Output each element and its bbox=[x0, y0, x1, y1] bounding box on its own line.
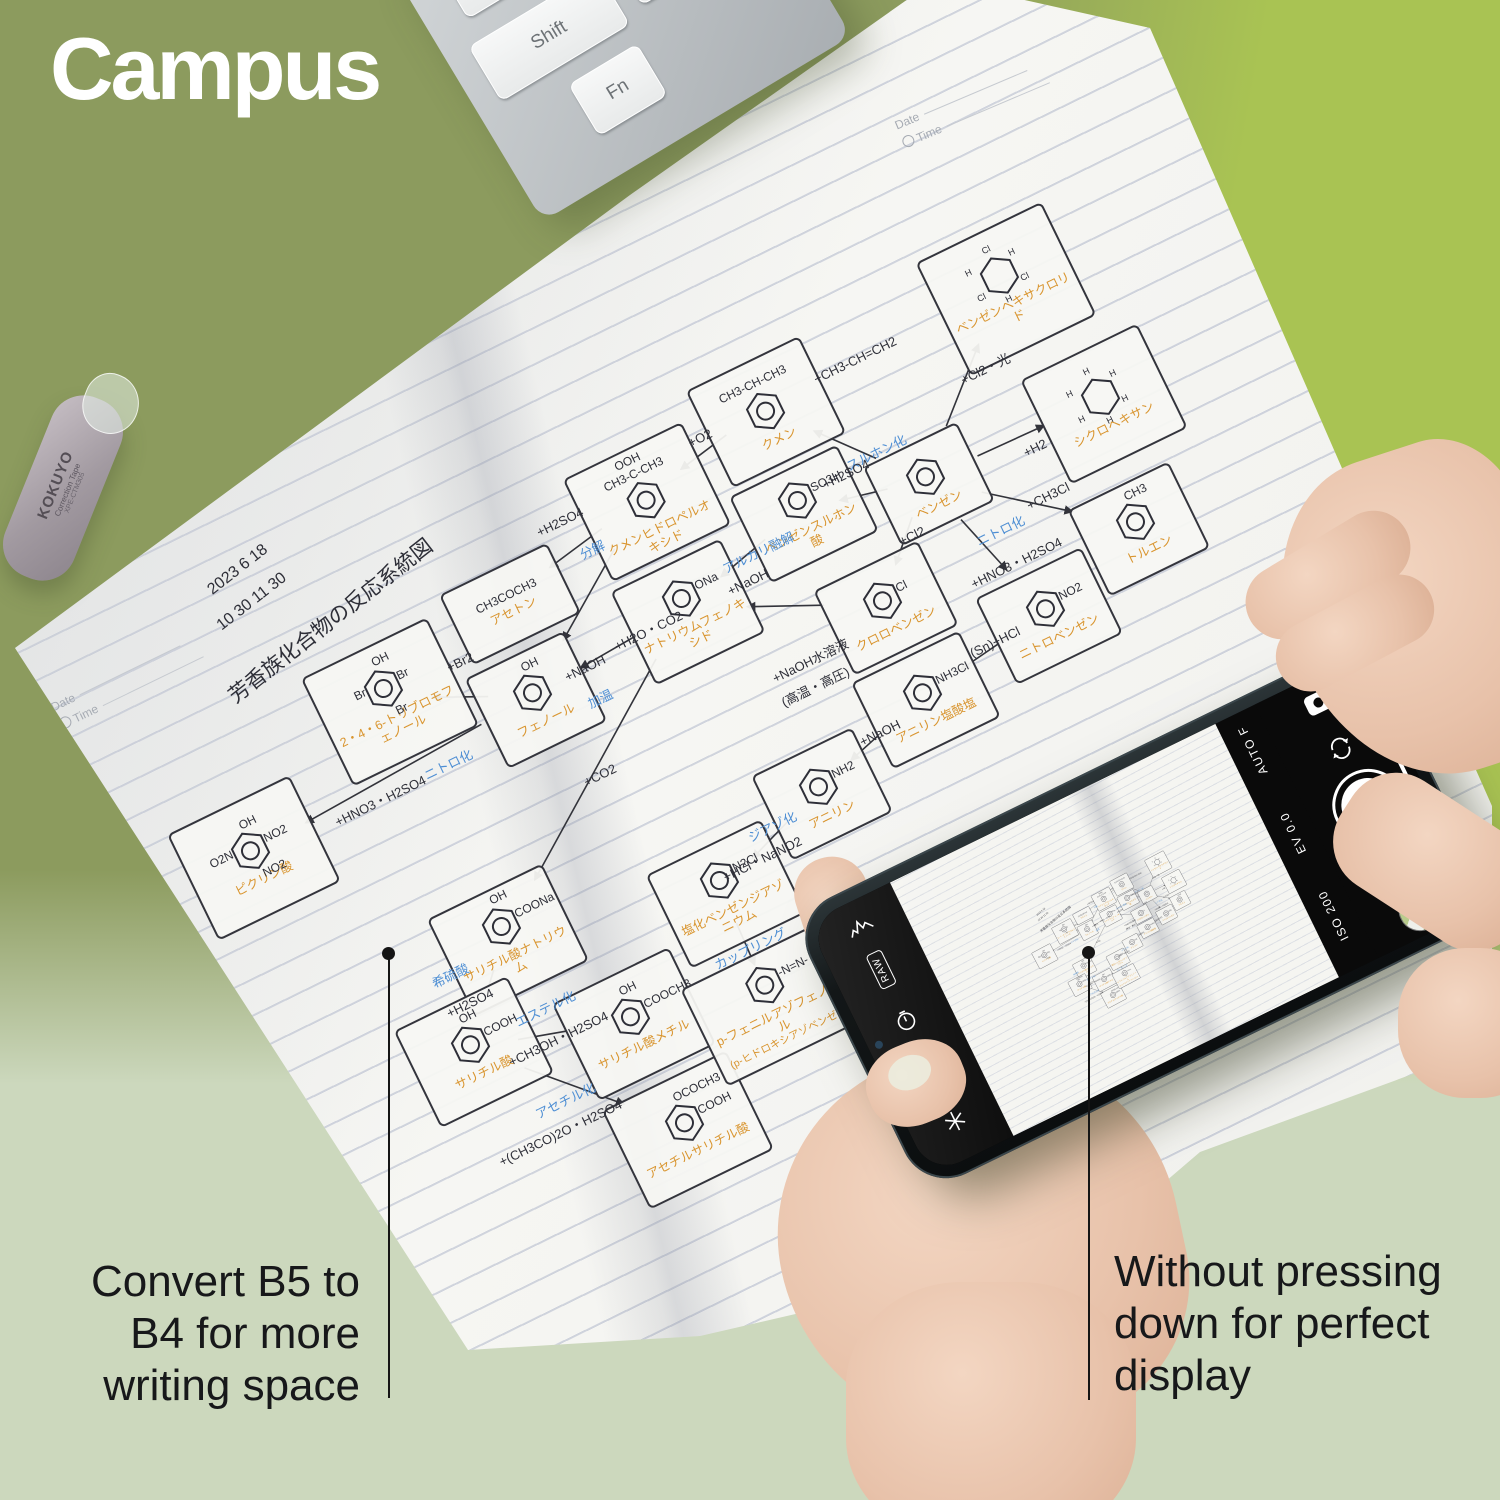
compound-name: フェノール bbox=[515, 701, 577, 741]
notebook-title: 芳香族化合物の反応系統図 bbox=[1039, 905, 1072, 934]
compound-alt-name: (p-ヒドロキシアゾベンゼン) bbox=[729, 1003, 853, 1071]
camera-right-toolbar bbox=[1255, 654, 1483, 958]
formula-text: OOH bbox=[612, 450, 643, 474]
ring-substituent: CH3 bbox=[1121, 480, 1149, 503]
time-line bbox=[947, 82, 1050, 127]
ring-substituent: Cl bbox=[1154, 857, 1156, 859]
handwritten-date: 2023 6 18 bbox=[1036, 907, 1046, 916]
reagent-label: +CH3Cl bbox=[1162, 893, 1169, 898]
compound-name: トルエン bbox=[1178, 901, 1186, 907]
front-camera-dot bbox=[874, 1039, 885, 1050]
reagent-label: +NaOH bbox=[1116, 908, 1123, 913]
handwritten-time: 10 30 11 30 bbox=[1037, 911, 1049, 921]
compound-box-picric: OHNO2O2NNO2ピクリン酸 bbox=[1031, 943, 1058, 969]
ring-substituent: ONa bbox=[692, 569, 720, 592]
compound-name: ベンゼン bbox=[1145, 895, 1153, 901]
compound-name: サリチル酸 bbox=[1077, 985, 1087, 992]
benzene-ring-icon: SO3H bbox=[770, 472, 825, 529]
ring-substituent: Cl bbox=[975, 291, 987, 304]
ring-substituent: Br bbox=[352, 686, 369, 704]
reagent-label: +H2SO4 bbox=[1075, 975, 1083, 981]
time-line bbox=[103, 656, 204, 706]
timer-icon[interactable] bbox=[891, 1006, 923, 1040]
reagent-label: +Br2 bbox=[444, 649, 476, 675]
compound-box-phenoxide: ONaナトリウムフェノキシド bbox=[610, 539, 765, 686]
reagent-label: +NaOH水溶液 bbox=[1124, 918, 1137, 927]
compound-box-salicylic: OHCOOHサリチル酸 bbox=[1067, 973, 1092, 997]
correction-tape-model: XPE-CTM305 bbox=[58, 458, 91, 527]
reagent-label: 分解 bbox=[1093, 904, 1098, 908]
printed-date-time-right: Date Time bbox=[892, 54, 1054, 153]
reagent-label: アセチル化 bbox=[532, 1077, 599, 1122]
ring-substituent: OH bbox=[236, 812, 258, 832]
compound-name: フェノール bbox=[1085, 930, 1095, 937]
camera-left-toolbar: RAW bbox=[807, 883, 1013, 1177]
formula-text: CH3-C-CH3 bbox=[1097, 892, 1107, 899]
ring-substituent: H bbox=[1168, 879, 1170, 881]
date-label: Date bbox=[49, 691, 78, 715]
campus-logo: Campus bbox=[50, 18, 379, 120]
compound-name: ベンゼンスルホン酸 bbox=[1121, 897, 1138, 909]
ring-substituent: Cl bbox=[1142, 909, 1145, 912]
diagram-arrows bbox=[1001, 817, 1241, 1057]
compound-name: 2・4・6-トリブロモフェノール bbox=[1057, 928, 1077, 942]
caption-line: Convert B5 to bbox=[8, 1256, 360, 1308]
caption-line: writing space bbox=[8, 1360, 360, 1412]
compound-box-aniline: NH2アニリン bbox=[1121, 933, 1143, 954]
ring-substituent: Br bbox=[393, 700, 410, 718]
ring-substituent: ONa bbox=[1111, 909, 1115, 913]
benzene-ring-icon: NH3Cl bbox=[1143, 923, 1152, 932]
left-hand-palm bbox=[744, 1011, 1216, 1476]
camera-readouts: AUTO F EV 0.0 ISO 200 bbox=[1215, 705, 1378, 978]
reagent-label: +CH3OH・H2SO4 bbox=[1085, 977, 1101, 988]
formula-text: CH3COCH3 bbox=[474, 576, 539, 617]
compound-box-nitrobenzene: NO2ニトロベンゼン bbox=[1155, 904, 1178, 926]
reagent-label: ジアゾ化 bbox=[1121, 945, 1130, 951]
compound-name: クメン bbox=[1121, 886, 1127, 891]
compound-box-chp: OOHCH3-C-CH3クメンヒドロペルオキシド bbox=[563, 422, 732, 582]
reagent-label: ニトロ化 bbox=[1154, 898, 1163, 904]
benzene-ring-icon: ClHClHClH bbox=[972, 247, 1027, 304]
benzene-ring-icon: NO2 bbox=[1018, 580, 1073, 637]
compound-name: アセトン bbox=[1080, 914, 1088, 920]
ring-substituent: O2N bbox=[1038, 955, 1042, 959]
ring-substituent: H bbox=[1174, 876, 1176, 878]
formula-text: CH3-CH-CH3 bbox=[717, 363, 789, 408]
compound-box-aniline: NH2アニリン bbox=[751, 727, 893, 861]
formula-text: CH3COCH3 bbox=[1078, 911, 1088, 918]
benzene-ring-icon: ONa bbox=[654, 570, 709, 627]
compound-alt-name: (p-ヒドロキシアゾベンゼン) bbox=[1119, 976, 1138, 987]
reagent-label: +HNO3・H2SO4 bbox=[967, 532, 1065, 593]
ring-substituent: H bbox=[1158, 865, 1160, 867]
reagent-label: +CO2 bbox=[581, 761, 618, 790]
benzene-ring-icon: HHHHHH bbox=[1073, 368, 1128, 425]
compound-box-benzene: ベンゼン bbox=[1137, 885, 1158, 905]
reagent-label: +CH3OH・H2SO4 bbox=[505, 1006, 611, 1071]
ring-substituent: NH2 bbox=[1133, 938, 1137, 942]
compound-name: ニトロベンゼン bbox=[1162, 914, 1175, 922]
ring-substituent: H bbox=[1170, 876, 1172, 878]
ring-substituent: Cl bbox=[1160, 861, 1162, 863]
correction-tape: KOKUYO Correction Tape XPE-CTM305 bbox=[0, 385, 133, 591]
ring-substituent: OH bbox=[1102, 973, 1105, 976]
background-bright-green bbox=[0, 0, 1500, 1500]
callout-dot-left bbox=[382, 947, 395, 960]
ring-substituent: Cl bbox=[893, 578, 909, 596]
ring-substituent: Cl bbox=[1154, 865, 1156, 867]
compound-name: クロロベンゼン bbox=[1137, 913, 1150, 921]
keyboard-key-fn[interactable]: Fn bbox=[568, 44, 667, 137]
reagent-label: 分解 bbox=[576, 535, 608, 563]
ring-substituent: OH bbox=[1042, 949, 1045, 952]
compound-box-salicylate: OHCOONaサリチル酸ナトリウム bbox=[427, 863, 589, 1016]
benzene-ring-icon: CH3 bbox=[1108, 493, 1163, 550]
keyboard-key-control[interactable]: Control bbox=[610, 0, 753, 5]
benzene-ring-icon: OHCOOH bbox=[1075, 980, 1084, 989]
compound-box-diazonium: N2Cl塩化ベンゼンジアゾニウム bbox=[1106, 948, 1131, 972]
caption-line: B4 for more bbox=[8, 1308, 360, 1360]
phone-screen: RAW ベンゼンCH3-CH-CH3クメンClHClHClHベンゼンヘキサクロリ… bbox=[807, 654, 1482, 1177]
reagent-label: アルカリ融解 bbox=[1115, 902, 1127, 910]
benzene-ring-icon: OH bbox=[1083, 925, 1092, 934]
benzene-ring-icon: HHHHHH bbox=[1169, 876, 1178, 885]
reagent-label: +HNO3・H2SO4 bbox=[331, 770, 429, 831]
benzene-ring-icon: -N=N- bbox=[737, 956, 792, 1013]
chemistry-diagram: ベンゼンCH3-CH-CH3クメンClHClHClHベンゼンヘキサクロリドHHH… bbox=[0, 0, 1500, 1500]
camera-viewfinder: ベンゼンCH3-CH-CH3クメンClHClHClHベンゼンヘキサクロリドHHH… bbox=[890, 724, 1339, 1136]
reagent-label: +Cl2 bbox=[897, 523, 928, 548]
reagent-label: 加温 bbox=[1095, 927, 1100, 931]
benzene-ring-icon: NH2 bbox=[1128, 938, 1137, 947]
ring-substituent: OH bbox=[1062, 923, 1065, 926]
compound-box-methyl_salicylate: OHCOOCH3サリチル酸メチル bbox=[552, 947, 716, 1101]
ring-substituent: NH3Cl bbox=[1149, 922, 1155, 926]
shutter-button[interactable] bbox=[1320, 757, 1416, 853]
white-balance-icon[interactable] bbox=[940, 1106, 972, 1140]
ring-substituent: H bbox=[1152, 861, 1154, 863]
reagent-label: 希硫酸 bbox=[1073, 971, 1080, 976]
screen-glare bbox=[807, 654, 1482, 1177]
reagent-label: +H2SO4 bbox=[1131, 891, 1139, 897]
benzene-ring-icon bbox=[619, 472, 674, 529]
benzene-ring-icon bbox=[1117, 880, 1126, 889]
ring-substituent: OH bbox=[1085, 923, 1088, 926]
reagent-label: カップリング bbox=[1116, 963, 1128, 971]
reagent-label: +H2SO4 bbox=[444, 985, 496, 1021]
compound-name: アセチルサリチル酸 bbox=[1107, 994, 1123, 1004]
fingernail bbox=[883, 1049, 937, 1097]
ring-substituent: N2Cl bbox=[730, 850, 760, 874]
benzene-ring-icon: CH3 bbox=[1175, 895, 1184, 904]
reagent-label: アルカリ融解 bbox=[719, 526, 797, 577]
benzene-ring-icon: ONa bbox=[1105, 909, 1114, 918]
reagent-label: +H2 bbox=[1161, 887, 1165, 891]
compound-name: アニリン bbox=[807, 797, 858, 832]
reagent-label: +H2SO4 bbox=[534, 504, 586, 540]
reagent-label: (Sn)+HCl bbox=[968, 623, 1023, 660]
compound-box-aspirin: OCOCH3COOHアセチルサリチル酸 bbox=[1100, 984, 1127, 1009]
reagent-label: +H2 bbox=[1021, 436, 1049, 460]
compound-name: 2・4・6-トリブロモフェノール bbox=[334, 681, 465, 765]
ring-substituent: OH bbox=[369, 649, 391, 669]
histogram-icon bbox=[845, 913, 878, 945]
ring-substituent: NH2 bbox=[829, 758, 857, 781]
reagent-label: ニトロ化 bbox=[1070, 938, 1079, 944]
left-hand-finger bbox=[785, 847, 889, 974]
keyboard-key-shift[interactable]: Shift bbox=[468, 0, 630, 102]
callout-line-right bbox=[1088, 952, 1090, 1400]
ring-substituent: NO2 bbox=[1046, 951, 1050, 955]
ring-substituent: H bbox=[1170, 883, 1172, 885]
right-hand bbox=[1245, 418, 1500, 812]
compound-box-cumene: CH3-CH-CH3クメン bbox=[686, 336, 847, 488]
center-fold bbox=[251, 0, 780, 1465]
formula-text: OOH bbox=[1098, 891, 1103, 895]
benzene-ring-icon: OHCOONa bbox=[474, 898, 529, 955]
compound-box-salicylic: OHCOOHサリチル酸 bbox=[394, 976, 555, 1128]
ring-substituent: NH3Cl bbox=[933, 659, 971, 687]
smartphone: RAW ベンゼンCH3-CH-CH3クメンClHClHClHベンゼンヘキサクロリ… bbox=[790, 636, 1500, 1193]
reagent-label: エステル化 bbox=[1086, 974, 1096, 981]
benzene-ring-icon: OHCOOCH3 bbox=[1100, 974, 1109, 983]
caption-line: down for perfect bbox=[1114, 1298, 1500, 1350]
ring-substituent: OH bbox=[1077, 978, 1080, 981]
compound-name: アニリン塩酸塩 bbox=[894, 695, 979, 746]
ring-substituent: -N=N- bbox=[776, 953, 811, 980]
reagent-label: +H2SO4 bbox=[820, 456, 872, 492]
reagent-label: ジアゾ化 bbox=[744, 806, 799, 846]
compound-name: ナトリウムフェノキシド bbox=[641, 595, 756, 671]
reagent-label: +Br2 bbox=[1073, 923, 1078, 927]
reagent-label: +NaOH bbox=[725, 566, 771, 599]
date-line bbox=[80, 645, 181, 695]
raw-badge[interactable]: RAW bbox=[865, 949, 897, 991]
autofocus-readout: AUTO F bbox=[1235, 723, 1271, 777]
compound-box-anilinium: NH3Clアニリン塩酸塩 bbox=[851, 631, 1001, 770]
benzene-ring-icon: OHNO2O2NNO2 bbox=[223, 822, 278, 879]
compound-box-phenol: OHフェノール bbox=[465, 631, 608, 769]
reagent-label: +NaOH水溶液 bbox=[769, 633, 852, 686]
benzene-ring-icon: OHBrBrBr bbox=[356, 660, 411, 717]
benzene-ring-icon: NH3Cl bbox=[895, 664, 950, 721]
ring-substituent: COONa bbox=[512, 889, 557, 920]
right-hand-knuckles bbox=[1398, 948, 1500, 1098]
reagent-label: +NaOH bbox=[562, 652, 608, 685]
reagent-label: +H2SO4 bbox=[1086, 900, 1094, 906]
printed-date-time-left: Date Time bbox=[47, 629, 208, 735]
compound-box-toluene: CH3トルエン bbox=[1169, 890, 1191, 911]
benzene-ring-icon: OH bbox=[505, 664, 560, 721]
benzene-ring-icon: OHBrBrBr bbox=[1060, 925, 1069, 934]
ring-substituent: COOH bbox=[481, 1011, 519, 1039]
compound-name: ニトロベンゼン bbox=[1017, 611, 1102, 662]
benzene-ring-icon: -N=N- bbox=[1120, 969, 1129, 978]
keyboard-key-partial[interactable] bbox=[432, 0, 597, 19]
viewfinder-fold bbox=[1057, 758, 1249, 1085]
handwritten-date: 2023 6 18 bbox=[204, 541, 271, 599]
compound-box-chlorobenzene: Clクロロベンゼン bbox=[1130, 904, 1153, 925]
compound-box-tribromophenol: OHBrBrBr2・4・6-トリブロモフェノール bbox=[301, 617, 479, 786]
compound-name: アセトン bbox=[488, 594, 539, 629]
compound-box-chp: OOHCH3-C-CH3クメンヒドロペルオキシド bbox=[1091, 886, 1117, 911]
compound-box-diazonium: N2Cl塩化ベンゼンジアゾニウム bbox=[646, 819, 807, 969]
right-hand-middle-finger bbox=[1264, 562, 1447, 704]
ring-substituent: COOH bbox=[1115, 990, 1121, 995]
reagent-label: ニトロ化 bbox=[420, 744, 475, 784]
ring-substituent: H bbox=[1120, 392, 1130, 404]
reagent-label: +(CH3CO)2O・H2SO4 bbox=[1084, 991, 1104, 1003]
compound-name: サリチル酸ナトリウム bbox=[1077, 964, 1096, 977]
reagent-label: +(CH3CO)2O・H2SO4 bbox=[495, 1094, 624, 1170]
compound-name: 塩化ベンゼンジアゾニウム bbox=[1111, 956, 1130, 969]
compound-box-benzene: ベンゼン bbox=[863, 422, 995, 547]
sliders-icon[interactable] bbox=[1382, 851, 1417, 887]
flash-off-icon[interactable] bbox=[916, 1056, 948, 1090]
compound-box-phenol: OHフェノール bbox=[1077, 919, 1099, 941]
compound-box-nitrobenzene: NO2ニトロベンゼン bbox=[975, 547, 1123, 685]
reagent-label: エステル化 bbox=[512, 985, 579, 1031]
ring-substituent: N2Cl bbox=[1119, 952, 1124, 956]
compound-name: シクロヘキサン bbox=[1072, 399, 1157, 450]
ring-substituent: OH bbox=[487, 887, 509, 907]
viewfinder-diagram: ベンゼンCH3-CH-CH3クメンClHClHClHベンゼンヘキサクロリドHHH… bbox=[1001, 817, 1241, 1057]
ring-substituent: COOCH3 bbox=[1106, 972, 1114, 978]
reagent-label: +CH3-CH=CH2 bbox=[811, 333, 899, 386]
caption-line: display bbox=[1114, 1350, 1500, 1402]
date-line bbox=[924, 70, 1027, 115]
reagent-label: +H2O・CO2 bbox=[1099, 915, 1111, 923]
benzene-ring-icon bbox=[1099, 894, 1108, 903]
viewfinder-paper-lines bbox=[890, 724, 1339, 1136]
compound-box-sulfonic: SO3Hベンゼンスルホン酸 bbox=[1117, 889, 1140, 911]
compound-box-azo: -N=N-p-フェニルアゾフェノール(p-ヒドロキシアゾベンゼン) bbox=[680, 921, 868, 1086]
clock-icon bbox=[57, 714, 73, 730]
ring-substituent: COOH bbox=[695, 1089, 733, 1117]
caption-left: Convert B5 to B4 for more writing space bbox=[8, 1256, 360, 1412]
compound-name: ベンゼン bbox=[913, 487, 964, 522]
ring-substituent: OH bbox=[616, 978, 638, 998]
compound-name: シクロヘキサン bbox=[1169, 880, 1182, 888]
reagent-label: +H2O・CO2 bbox=[611, 605, 686, 655]
benzene-ring-icon bbox=[1142, 889, 1151, 898]
ring-substituent: SO3H bbox=[1129, 893, 1134, 897]
reagent-label: (Sn)+HCl bbox=[1154, 916, 1162, 922]
ring-substituent: Br bbox=[1066, 926, 1069, 929]
reagent-label: アセチル化 bbox=[1089, 988, 1099, 995]
compound-name: サリチル酸メチル bbox=[596, 1016, 692, 1073]
compound-name: アニリン塩酸塩 bbox=[1143, 927, 1156, 935]
reagent-label: +NaOH bbox=[1138, 931, 1145, 936]
paper-sheen bbox=[0, 0, 1500, 1500]
benzene-ring-icon: N2Cl bbox=[692, 852, 747, 909]
benzene-ring-icon: NH2 bbox=[791, 758, 846, 815]
ring-substituent: NO2 bbox=[1046, 956, 1050, 960]
compound-box-aspirin: OCOCH3COOHアセチルサリチル酸 bbox=[602, 1050, 774, 1209]
reagent-label: +NaOH bbox=[1092, 922, 1099, 927]
compound-name: p-フェニルアゾフェノール bbox=[709, 974, 855, 1065]
ring-substituent: NO2 bbox=[260, 857, 288, 880]
ring-substituent: Cl bbox=[980, 243, 992, 256]
time-label: Time bbox=[914, 122, 944, 145]
ring-substituent: COOCH3 bbox=[641, 976, 693, 1011]
compound-name: ベンゼンスルホン酸 bbox=[757, 497, 870, 572]
gallery-thumbnail[interactable] bbox=[1392, 882, 1448, 938]
ev-readout: EV 0.0 bbox=[1277, 810, 1309, 857]
ring-substituent: OCOCH3 bbox=[670, 1069, 722, 1104]
ring-substituent: NO2 bbox=[261, 822, 289, 845]
compound-name: サリチル酸ナトリウム bbox=[458, 921, 578, 999]
benzene-ring-icon: SO3H bbox=[1123, 893, 1132, 902]
ruled-lines bbox=[0, 0, 1500, 1500]
benzene-ring-icon bbox=[898, 448, 953, 505]
benzene-ring-icon: OHCOOCH3 bbox=[603, 988, 658, 1045]
compound-name: アニリン bbox=[1130, 944, 1138, 950]
ring-substituent: Br bbox=[1066, 931, 1069, 934]
compound-box-bhc: ClHClHClHベンゼンヘキサクロリド bbox=[1144, 850, 1172, 877]
benzene-ring-icon bbox=[738, 382, 793, 439]
iso-readout: ISO 200 bbox=[1315, 888, 1351, 943]
flip-camera-icon[interactable] bbox=[1323, 731, 1360, 770]
handwritten-time: 10 30 11 30 bbox=[214, 569, 291, 634]
right-hand-thumb bbox=[1313, 753, 1500, 971]
notebook: Date Time Date Time ベンゼンCH3-CH-CH3クメンClH… bbox=[0, 0, 1500, 1500]
compound-box-salicylate: OHCOONaサリチル酸ナトリウム bbox=[1072, 956, 1097, 980]
reagent-label: +HCl・NaNO2 bbox=[1117, 949, 1130, 958]
formula-text: CH3-C-CH3 bbox=[602, 454, 666, 495]
callout-dot-right bbox=[1082, 946, 1095, 959]
compound-box-bhc: ClHClHClHベンゼンヘキサクロリド bbox=[915, 202, 1096, 377]
benzene-ring-icon: Cl bbox=[1136, 909, 1145, 918]
compound-name: ピクリン酸 bbox=[233, 859, 295, 899]
ring-substituent: H bbox=[963, 267, 973, 279]
compound-box-toluene: CH3トルエン bbox=[1068, 461, 1211, 596]
compound-name: クロロベンゼン bbox=[854, 603, 939, 654]
compound-name: クメンヒドロペルオキシド bbox=[1097, 898, 1116, 911]
ring-substituent: OCOCH3 bbox=[1111, 987, 1119, 993]
compound-box-cyclohexane: HHHHHHシクロヘキサン bbox=[1020, 323, 1188, 484]
left-hand-wrist bbox=[846, 1282, 1136, 1500]
diagram-arrows bbox=[0, 0, 1500, 1500]
compound-box-acetone: CH3COCH3アセトン bbox=[439, 543, 581, 666]
compound-box-picric: OHNO2O2NNO2ピクリン酸 bbox=[167, 775, 341, 941]
compound-box-cumene: CH3-CH-CH3クメン bbox=[1109, 872, 1134, 896]
camera-mode-icon[interactable] bbox=[1302, 688, 1334, 717]
ring-substituent: OH bbox=[518, 654, 540, 674]
notebook-title: 芳香族化合物の反応系統図 bbox=[221, 531, 438, 710]
ring-substituent: H bbox=[1107, 367, 1117, 379]
compound-box-cyclohexane: HHHHHHシクロヘキサン bbox=[1161, 869, 1187, 894]
ring-substituent: H bbox=[1064, 388, 1074, 400]
time-label: Time bbox=[71, 702, 101, 726]
compound-name: クメンヒドロペルオキシド bbox=[601, 495, 725, 575]
reagent-label: 加温 bbox=[584, 684, 616, 712]
benzene-ring-icon: OHCOOH bbox=[443, 1016, 498, 1073]
ring-substituent: H bbox=[1077, 413, 1087, 425]
ring-substituent: NO2 bbox=[1056, 580, 1084, 603]
zoom-slider[interactable] bbox=[1359, 681, 1413, 787]
callout-line-left bbox=[388, 953, 390, 1398]
compound-name: クメン bbox=[759, 424, 799, 453]
compound-name: トルエン bbox=[1123, 532, 1174, 567]
benzene-ring-icon: N2Cl bbox=[1113, 953, 1122, 962]
ring-substituent: H bbox=[1174, 883, 1176, 885]
ring-substituent: H bbox=[1081, 365, 1091, 377]
compound-name: ベンゼンヘキサクロリド bbox=[1150, 861, 1170, 875]
left-hand-fingertip bbox=[854, 1026, 977, 1139]
ring-substituent: O2N bbox=[207, 848, 235, 871]
